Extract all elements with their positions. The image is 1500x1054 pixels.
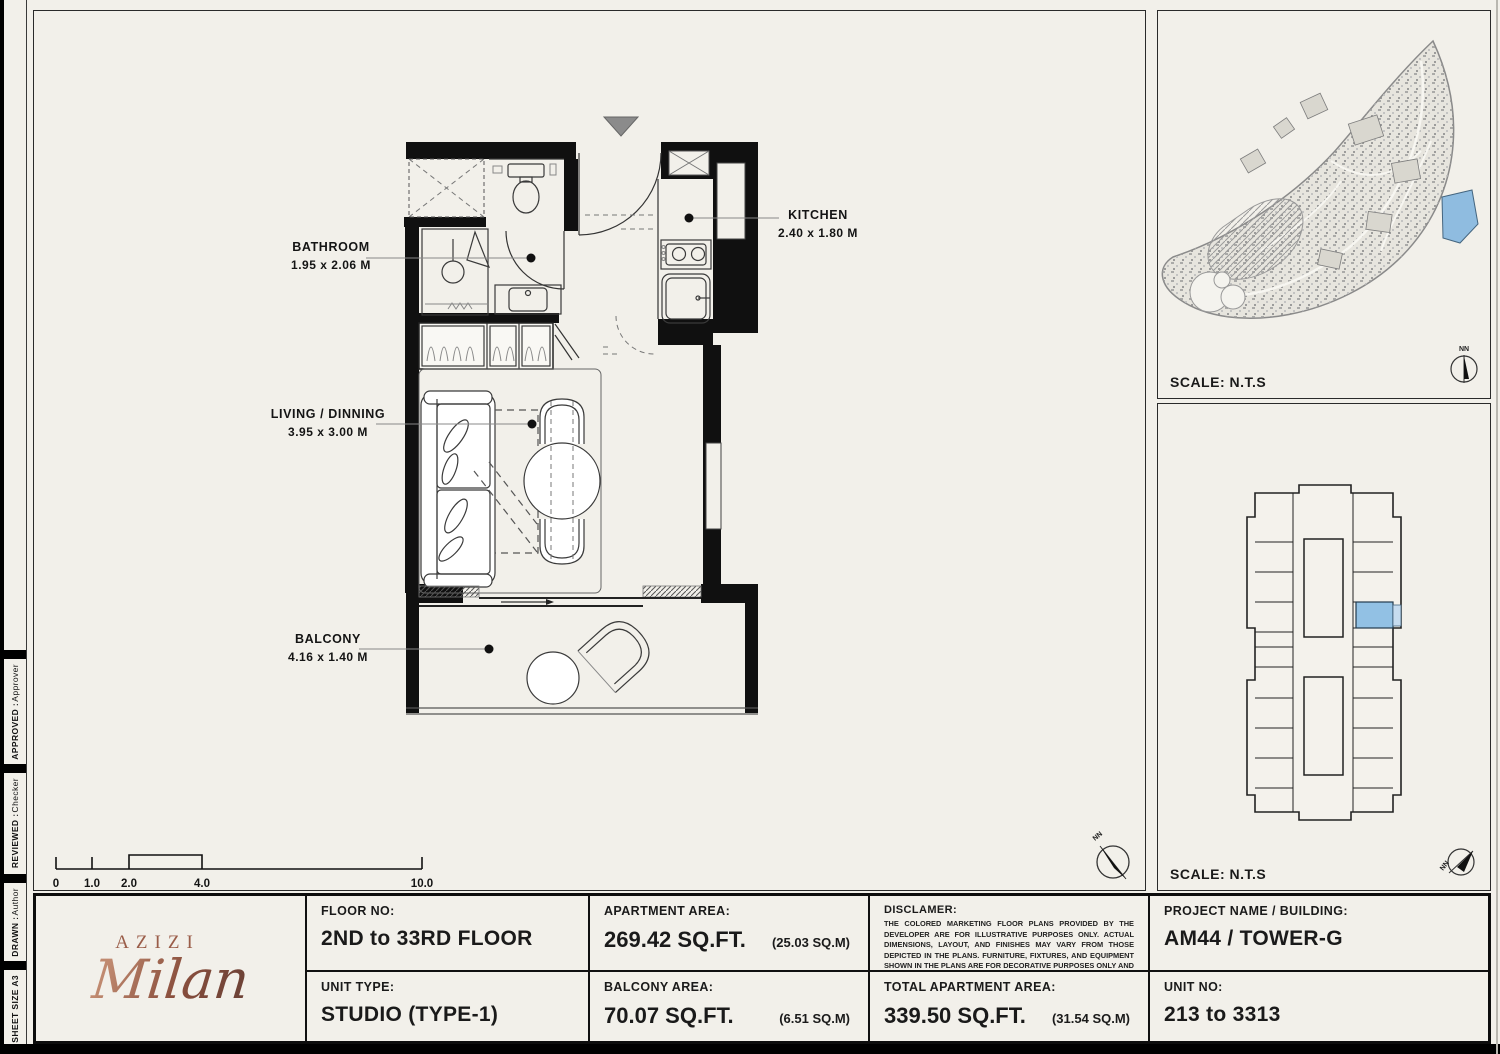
scale-tick: 10.0	[411, 878, 433, 889]
floor-no-value: 2ND to 33RD FLOOR	[321, 927, 574, 951]
north-label: NN	[1459, 346, 1469, 353]
floor-plan-panel: BATHROOM 1.95 x 2.06 M KITCHEN 2.40 x 1.…	[33, 10, 1146, 891]
floor-no-cell: FLOOR NO: 2ND to 33RD FLOOR	[305, 896, 588, 970]
scale-tick: 1.0	[84, 878, 100, 889]
balcony-area-value: 70.07 SQ.FT.	[604, 1003, 734, 1029]
total-area-value: 339.50 SQ.FT.	[884, 1003, 1026, 1029]
room-label: LIVING / DINNING	[271, 407, 385, 421]
disclaimer-cell: DISCLAMER: THE COLORED MARKETING FLOOR P…	[868, 896, 1148, 970]
sheet-edge-strip: APPROVED : Approver REVIEWED : Checker D…	[0, 0, 27, 1054]
disclaimer-text: THE COLORED MARKETING FLOOR PLANS PROVID…	[884, 919, 1134, 970]
approved-by: APPROVED : Approver	[10, 659, 20, 765]
total-area-label: TOTAL APARTMENT AREA:	[884, 980, 1134, 994]
room-label: KITCHEN	[788, 208, 848, 222]
north-arrow-icon: NN	[1092, 831, 1129, 879]
disclaimer-label: DISCLAMER:	[884, 904, 1134, 916]
scale-tick: 0	[53, 878, 59, 889]
scale-tick: 4.0	[194, 878, 210, 889]
project-value: AM44 / TOWER-G	[1164, 927, 1474, 951]
north-arrow-icon: NN	[1439, 849, 1474, 875]
reviewed-value: Checker	[10, 778, 20, 812]
north-label: NN	[1439, 860, 1451, 872]
total-area-cell: TOTAL APARTMENT AREA: 339.50 SQ.FT. (31.…	[868, 970, 1148, 1041]
wardrobe	[419, 323, 579, 369]
room-dims: 3.95 x 3.00 M	[288, 425, 368, 439]
drawn-value: Author	[10, 888, 20, 915]
sheet-bottom-border	[0, 1044, 1500, 1054]
approved-value: Approver	[10, 664, 20, 702]
unit-type-label: UNIT TYPE:	[321, 980, 574, 994]
unit-type-cell: UNIT TYPE: STUDIO (TYPE-1)	[305, 970, 588, 1041]
floor-no-label: FLOOR NO:	[321, 904, 574, 918]
room-label: BATHROOM	[292, 240, 369, 254]
drawn-by: DRAWN : Author	[10, 883, 20, 962]
site-map-panel: NN SCALE: N.T.S	[1157, 10, 1491, 399]
unit-type-value: STUDIO (TYPE-1)	[321, 1003, 574, 1027]
strip-divider	[4, 961, 26, 970]
building-footprint	[1247, 485, 1401, 820]
entry-door	[579, 153, 661, 235]
floor-plan-drawing: BATHROOM 1.95 x 2.06 M KITCHEN 2.40 x 1.…	[34, 11, 1144, 889]
scale-bar	[56, 855, 422, 869]
masterplan-crescent	[1162, 41, 1478, 318]
logo-name: Milan	[90, 956, 252, 1005]
reviewed-by: REVIEWED : Checker	[10, 773, 20, 873]
drawing-sheet: APPROVED : Approver REVIEWED : Checker D…	[0, 0, 1500, 1054]
key-plan-panel: NN SCALE: N.T.S	[1157, 403, 1491, 891]
room-dims: 4.16 x 1.40 M	[288, 650, 368, 664]
entry-arrow-icon	[604, 117, 638, 136]
highlighted-unit	[1356, 602, 1393, 628]
balcony-area-label: BALCONY AREA:	[604, 980, 854, 994]
balcony	[406, 586, 758, 714]
apartment-area-cell: APARTMENT AREA: 269.42 SQ.FT. (25.03 SQ.…	[588, 896, 868, 970]
project-cell: PROJECT NAME / BUILDING: AM44 / TOWER-G	[1148, 896, 1488, 970]
apartment-area-metric: (25.03 SQ.M)	[772, 935, 850, 950]
room-dims: 2.40 x 1.80 M	[778, 226, 858, 240]
site-map-drawing: NN	[1158, 11, 1489, 396]
unit-no-label: UNIT NO:	[1164, 980, 1474, 994]
project-label: PROJECT NAME / BUILDING:	[1164, 904, 1474, 918]
sheet-size: SHEET SIZE A3	[10, 970, 20, 1048]
title-block: AZIZI Milan FLOOR NO: 2ND to 33RD FLOOR …	[33, 893, 1491, 1044]
highlighted-unit-balcony	[1393, 605, 1401, 626]
balcony-area-cell: BALCONY AREA: 70.07 SQ.FT. (6.51 SQ.M)	[588, 970, 868, 1041]
north-label: NN	[1092, 831, 1104, 843]
logo: AZIZI Milan	[36, 896, 305, 1041]
reviewed-label: REVIEWED :	[10, 814, 20, 869]
apartment-area-label: APARTMENT AREA:	[604, 904, 854, 918]
strip-divider	[4, 874, 26, 883]
approved-label: APPROVED :	[10, 703, 20, 760]
strip-divider	[4, 650, 26, 659]
living-dining-furniture	[419, 369, 601, 593]
sheet-right-border	[1496, 0, 1498, 1054]
unit-no-value: 213 to 3313	[1164, 1003, 1474, 1027]
apartment-area-value: 269.42 SQ.FT.	[604, 927, 746, 953]
room-label: BALCONY	[295, 632, 361, 646]
drawn-label: DRAWN :	[10, 916, 20, 956]
key-plan-drawing: NN	[1158, 404, 1489, 888]
unit-no-cell: UNIT NO: 213 to 3313	[1148, 970, 1488, 1041]
site-scale-note: SCALE: N.T.S	[1170, 374, 1266, 390]
total-area-metric: (31.54 SQ.M)	[1052, 1011, 1130, 1026]
scale-tick: 2.0	[121, 878, 137, 889]
balcony-area-metric: (6.51 SQ.M)	[779, 1011, 850, 1026]
north-arrow-icon: NN	[1451, 346, 1477, 383]
key-scale-note: SCALE: N.T.S	[1170, 866, 1266, 882]
highlighted-parcel	[1442, 190, 1478, 243]
scale-bar-ticks: 0 1.0 2.0 4.0 10.0	[53, 878, 433, 889]
room-dims: 1.95 x 2.06 M	[291, 258, 371, 272]
